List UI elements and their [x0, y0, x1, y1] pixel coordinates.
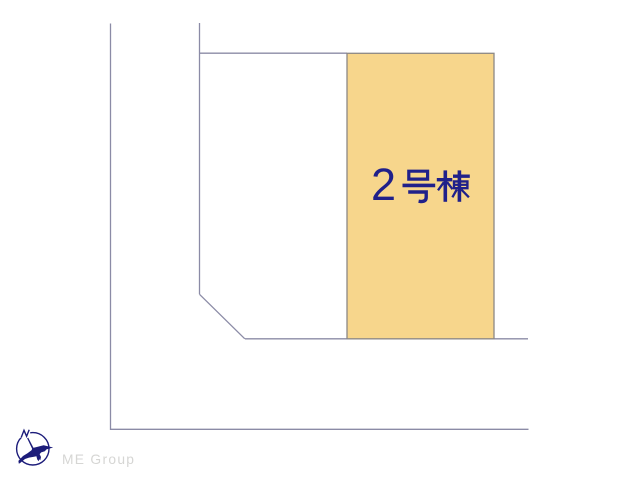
svg-text:ME Group: ME Group	[62, 452, 135, 467]
svg-text:2: 2	[371, 159, 396, 210]
